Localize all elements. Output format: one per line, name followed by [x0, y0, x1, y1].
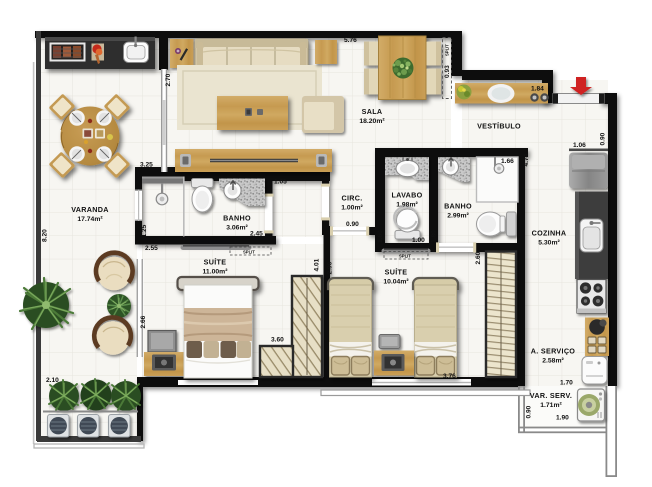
svg-text:1.70: 1.70 — [560, 380, 573, 387]
svg-text:0.90: 0.90 — [526, 405, 533, 418]
svg-text:1.60: 1.60 — [377, 230, 384, 243]
svg-text:SUÍTE: SUÍTE — [204, 258, 227, 267]
svg-text:5.76: 5.76 — [344, 37, 357, 44]
svg-text:8.20: 8.20 — [42, 229, 49, 242]
svg-text:1.25: 1.25 — [141, 224, 148, 237]
svg-text:2.70: 2.70 — [165, 73, 172, 86]
svg-text:0.93: 0.93 — [444, 65, 451, 78]
svg-text:LAVABO: LAVABO — [391, 191, 422, 200]
svg-text:2.66: 2.66 — [140, 315, 147, 328]
svg-text:3.76: 3.76 — [443, 373, 456, 380]
svg-text:SPLIT: SPLIT — [445, 44, 450, 56]
svg-text:2.60: 2.60 — [475, 251, 482, 264]
svg-text:10.04m²: 10.04m² — [383, 279, 409, 286]
svg-text:18.20m²: 18.20m² — [359, 118, 385, 125]
svg-text:SPLIT: SPLIT — [399, 254, 411, 259]
svg-text:SPLIT: SPLIT — [243, 249, 255, 254]
svg-text:SUÍTE: SUÍTE — [385, 268, 408, 277]
svg-text:2.45: 2.45 — [250, 231, 263, 238]
svg-text:17.74m²: 17.74m² — [77, 216, 103, 223]
svg-text:1.00: 1.00 — [412, 237, 425, 244]
svg-text:SALA: SALA — [362, 107, 383, 116]
svg-text:1.80: 1.80 — [431, 230, 438, 243]
svg-text:CIRC.: CIRC. — [341, 194, 362, 203]
svg-text:A. SERVIÇO: A. SERVIÇO — [531, 347, 576, 356]
svg-text:VAR. SERV.: VAR. SERV. — [530, 391, 572, 400]
svg-text:5.30m²: 5.30m² — [538, 240, 560, 247]
svg-text:2.10: 2.10 — [46, 377, 59, 384]
svg-text:2.99m²: 2.99m² — [447, 213, 469, 220]
svg-text:1.06: 1.06 — [573, 142, 586, 149]
svg-text:VESTÍBULO: VESTÍBULO — [477, 122, 521, 131]
svg-text:3.06m²: 3.06m² — [226, 225, 248, 232]
svg-text:1.66: 1.66 — [501, 158, 514, 165]
svg-text:11.00m²: 11.00m² — [203, 269, 229, 276]
svg-text:1.98m²: 1.98m² — [396, 202, 418, 209]
svg-text:4.01: 4.01 — [314, 258, 321, 271]
svg-text:BANHO: BANHO — [223, 214, 251, 223]
svg-text:1.05: 1.05 — [274, 179, 287, 186]
svg-text:BANHO: BANHO — [444, 202, 472, 211]
svg-text:2.55: 2.55 — [145, 245, 158, 252]
svg-text:0.90: 0.90 — [600, 132, 607, 145]
svg-text:COZINHA: COZINHA — [532, 229, 567, 238]
svg-text:VARANDA: VARANDA — [71, 205, 109, 214]
svg-text:2.58m²: 2.58m² — [542, 358, 564, 365]
svg-text:1.84: 1.84 — [531, 86, 544, 93]
svg-text:3.25: 3.25 — [140, 162, 153, 169]
svg-text:0.90: 0.90 — [346, 221, 359, 228]
svg-text:1.00m²: 1.00m² — [341, 205, 363, 212]
svg-text:2.90: 2.90 — [327, 261, 334, 274]
svg-text:1.90: 1.90 — [556, 415, 569, 422]
svg-text:1.71m²: 1.71m² — [540, 402, 562, 409]
svg-text:4.74: 4.74 — [523, 153, 530, 166]
svg-text:3.60: 3.60 — [271, 337, 284, 344]
